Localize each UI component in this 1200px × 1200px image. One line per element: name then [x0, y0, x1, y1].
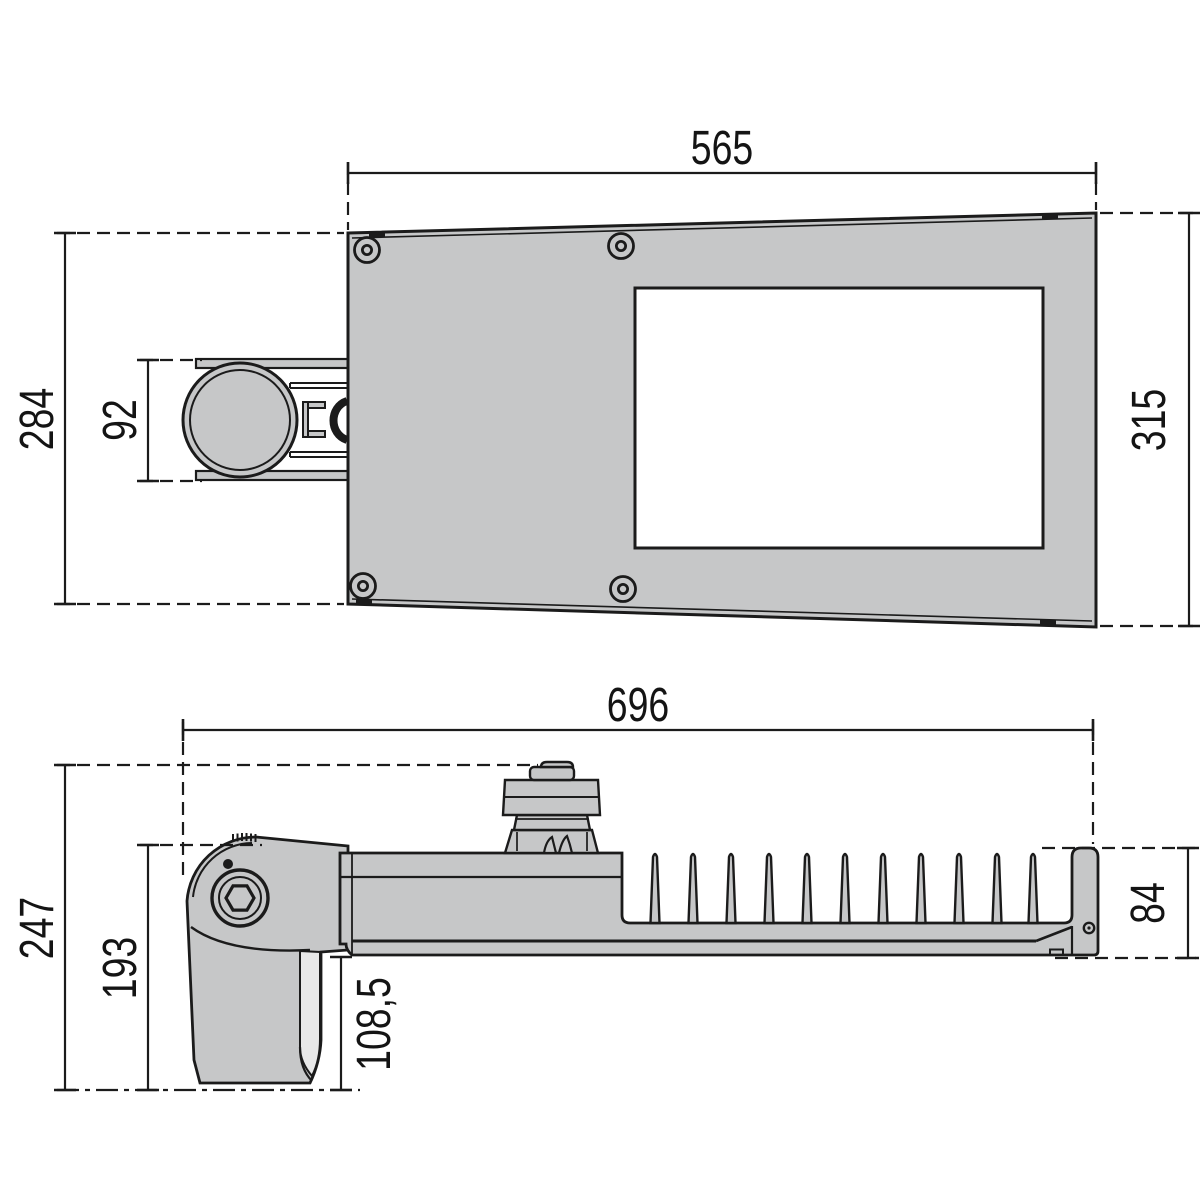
- luminaire-body: [340, 848, 1098, 955]
- dim-label-top-height-left: 284: [11, 388, 65, 450]
- mounting-bracket: [187, 833, 348, 1083]
- dim-label-side-height-bracket: 193: [94, 937, 148, 999]
- clamp-bracket: [303, 402, 325, 437]
- heatsink-fin: [993, 854, 1002, 923]
- dim-label-top-height-right: 315: [1123, 389, 1177, 451]
- heatsink-fin: [879, 854, 888, 923]
- technical-drawing-page: 565 284 92 315: [0, 0, 1200, 1200]
- body-outline: [340, 848, 1098, 955]
- dim-label-arm-width: 92: [94, 399, 148, 441]
- dim-label-side-height-underside: 108,5: [348, 977, 402, 1071]
- dim-label-side-length: 696: [607, 679, 669, 733]
- socket-neck-tier: [514, 815, 590, 830]
- socket-dome: [541, 762, 573, 767]
- edge-notch: [1042, 214, 1058, 219]
- dim-label-side-height-body: 84: [1122, 882, 1176, 924]
- heatsink-fin: [1029, 854, 1038, 923]
- cable-gasket: [334, 401, 348, 440]
- heatsink-fin: [917, 854, 926, 923]
- pole-pipe-circle: [183, 363, 297, 477]
- top-view: 565 284 92 315: [11, 122, 1200, 627]
- dim-label-top-width: 565: [691, 122, 753, 176]
- bracket-body: [187, 837, 348, 1083]
- technical-drawing-canvas: 565 284 92 315: [0, 0, 1200, 1200]
- socket-cap: [530, 767, 574, 780]
- side-view: 696 247 193 108,5: [11, 679, 1199, 1090]
- heatsink-fins: [651, 854, 1038, 923]
- heatsink-fin: [955, 854, 964, 923]
- heatsink-fin: [803, 854, 812, 923]
- heatsink-fin: [689, 854, 698, 923]
- pole-wedge: [300, 951, 320, 1076]
- lens-window: [635, 288, 1043, 548]
- dim-label-side-height-total: 247: [11, 897, 65, 959]
- edge-notch: [1040, 619, 1056, 625]
- bracket-pin-screw-icon: [223, 859, 233, 869]
- heatsink-fin: [841, 854, 850, 923]
- heatsink-fin: [651, 854, 660, 923]
- mounting-arm: [183, 359, 350, 480]
- edge-notch: [356, 599, 372, 605]
- heatsink-fin: [727, 854, 736, 923]
- heatsink-fin: [765, 854, 774, 923]
- edge-notch: [369, 232, 385, 237]
